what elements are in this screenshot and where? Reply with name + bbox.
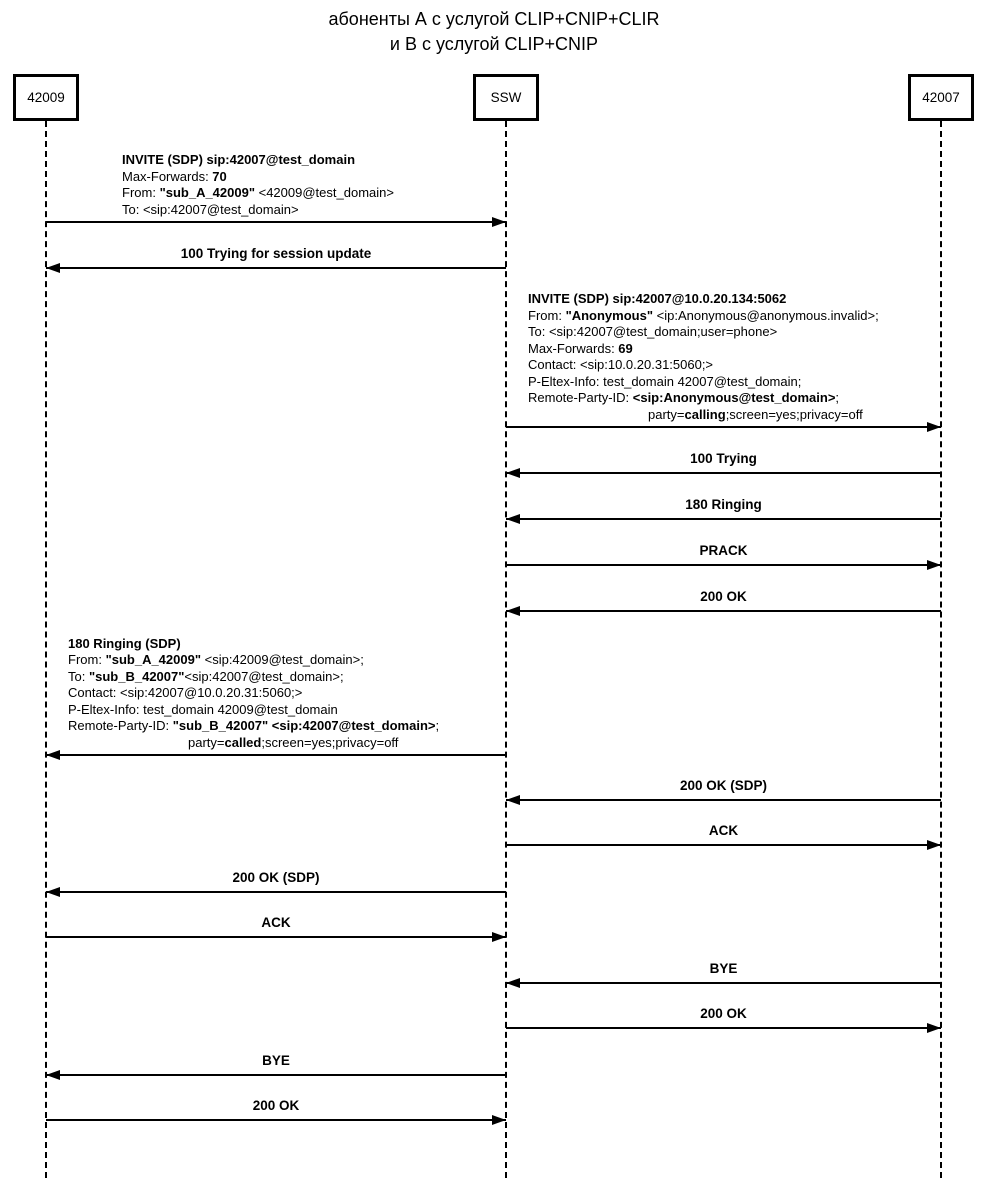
message-arrow-line	[46, 267, 506, 269]
message-header-text: <ip:Anonymous@anonymous.invalid>;	[653, 308, 879, 323]
message-arrow-line	[46, 221, 506, 223]
message-label: ACK	[46, 914, 506, 932]
diagram-title-line1: абоненты А с услугой CLIP+CNIP+CLIR	[0, 7, 988, 32]
message-header-text: To: <sip:42007@test_domain>	[122, 202, 299, 217]
arrow-head-right-icon	[927, 840, 941, 850]
message-header-text: From:	[528, 308, 566, 323]
message-header-text: Remote-Party-ID:	[68, 718, 173, 733]
arrow-head-right-icon	[492, 1115, 506, 1125]
message-header-block: 180 Ringing (SDP)From: "sub_A_42009" <si…	[68, 636, 439, 752]
message-header-text: "sub_A_42009"	[106, 652, 201, 667]
message-label: BYE	[46, 1052, 506, 1070]
arrow-head-right-icon	[927, 560, 941, 570]
message-header-line: INVITE (SDP) sip:42007@test_domain	[122, 152, 394, 169]
message-header-text: ;	[436, 718, 440, 733]
arrow-head-left-icon	[46, 887, 60, 897]
message-header-line: To: <sip:42007@test_domain>	[122, 202, 394, 219]
message-arrow-line	[506, 610, 941, 612]
message-arrow-line	[506, 472, 941, 474]
message-arrow-line	[46, 1119, 506, 1121]
message-header-text: 69	[618, 341, 632, 356]
message-header-text: From:	[122, 185, 160, 200]
message-header-text: "sub_B_42007"	[89, 669, 184, 684]
message-header-text: <42009@test_domain>	[255, 185, 394, 200]
actor-box-42007: 42007	[908, 74, 974, 121]
message-header-line: Contact: <sip:42007@10.0.20.31:5060;>	[68, 685, 439, 702]
message-header-text: <sip:42007@test_domain>;	[184, 669, 343, 684]
message-header-text: party=	[648, 407, 685, 422]
message-header-text: Contact: <sip:42007@10.0.20.31:5060;>	[68, 685, 302, 700]
message-header-line: party=called;screen=yes;privacy=off	[68, 735, 439, 752]
message-header-text: called	[225, 735, 262, 750]
diagram-title-line2: и В с услугой CLIP+CNIP	[0, 32, 988, 57]
message-header-line: party=calling;screen=yes;privacy=off	[528, 407, 879, 424]
message-header-text: "sub_A_42009"	[160, 185, 255, 200]
message-label: BYE	[506, 960, 941, 978]
arrow-head-right-icon	[492, 217, 506, 227]
message-header-line: From: "sub_A_42009" <42009@test_domain>	[122, 185, 394, 202]
message-label: 200 OK (SDP)	[46, 869, 506, 887]
message-header-line: From: "sub_A_42009" <sip:42009@test_doma…	[68, 652, 439, 669]
arrow-head-right-icon	[927, 1023, 941, 1033]
actor-label: 42007	[922, 90, 960, 105]
arrow-head-left-icon	[46, 263, 60, 273]
message-header-text: To:	[68, 669, 89, 684]
message-arrow-line	[506, 799, 941, 801]
message-header-line: From: "Anonymous" <ip:Anonymous@anonymou…	[528, 308, 879, 325]
message-header-text: Remote-Party-ID:	[528, 390, 633, 405]
message-header-text: INVITE (SDP) sip:42007@test_domain	[122, 152, 355, 167]
message-header-text: ;	[835, 390, 839, 405]
message-header-text: ;screen=yes;privacy=off	[726, 407, 863, 422]
message-header-text: "Anonymous"	[566, 308, 653, 323]
message-header-block: INVITE (SDP) sip:42007@test_domainMax-Fo…	[122, 152, 394, 218]
arrow-head-left-icon	[506, 978, 520, 988]
actor-box-SSW: SSW	[473, 74, 539, 121]
message-arrow-line	[46, 936, 506, 938]
message-header-line: Remote-Party-ID: "sub_B_42007" <sip:4200…	[68, 718, 439, 735]
message-header-text: <sip:42009@test_domain>;	[201, 652, 364, 667]
arrow-head-left-icon	[46, 1070, 60, 1080]
message-header-text: Max-Forwards:	[528, 341, 618, 356]
message-header-text: 70	[212, 169, 226, 184]
message-arrow-line	[506, 564, 941, 566]
message-header-line: To: "sub_B_42007"<sip:42007@test_domain>…	[68, 669, 439, 686]
message-label: 200 OK	[46, 1097, 506, 1115]
message-header-text: 180 Ringing (SDP)	[68, 636, 181, 651]
arrow-head-right-icon	[492, 932, 506, 942]
message-header-line: To: <sip:42007@test_domain;user=phone>	[528, 324, 879, 341]
message-header-line: 180 Ringing (SDP)	[68, 636, 439, 653]
message-header-text: P-Eltex-Info: test_domain 42007@test_dom…	[528, 374, 801, 389]
message-header-text: INVITE (SDP) sip:42007@10.0.20.134:5062	[528, 291, 786, 306]
arrow-head-right-icon	[927, 422, 941, 432]
arrow-head-left-icon	[506, 795, 520, 805]
message-header-block: INVITE (SDP) sip:42007@10.0.20.134:5062F…	[528, 291, 879, 423]
message-arrow-line	[46, 1074, 506, 1076]
arrow-head-left-icon	[506, 468, 520, 478]
message-header-text: Contact: <sip:10.0.20.31:5060;>	[528, 357, 713, 372]
diagram-title: абоненты А с услугой CLIP+CNIP+CLIR и В …	[0, 7, 988, 57]
message-label: 200 OK (SDP)	[506, 777, 941, 795]
message-arrow-line	[46, 754, 506, 756]
message-arrow-line	[506, 426, 941, 428]
actor-box-42009: 42009	[13, 74, 79, 121]
arrow-head-left-icon	[506, 606, 520, 616]
message-header-text: From:	[68, 652, 106, 667]
message-header-line: P-Eltex-Info: test_domain 42007@test_dom…	[528, 374, 879, 391]
message-header-text: <sip:Anonymous@test_domain>	[633, 390, 836, 405]
message-header-line: P-Eltex-Info: test_domain 42009@test_dom…	[68, 702, 439, 719]
message-label: 100 Trying	[506, 450, 941, 468]
message-header-line: Remote-Party-ID: <sip:Anonymous@test_dom…	[528, 390, 879, 407]
message-header-text: "sub_B_42007" <sip:42007@test_domain>	[173, 718, 436, 733]
actor-label: SSW	[491, 90, 522, 105]
message-arrow-line	[46, 891, 506, 893]
message-header-text: Max-Forwards:	[122, 169, 212, 184]
message-label: 100 Trying for session update	[46, 245, 506, 263]
message-header-line: Contact: <sip:10.0.20.31:5060;>	[528, 357, 879, 374]
actor-label: 42009	[27, 90, 65, 105]
message-header-text: P-Eltex-Info: test_domain 42009@test_dom…	[68, 702, 338, 717]
message-header-line: INVITE (SDP) sip:42007@10.0.20.134:5062	[528, 291, 879, 308]
message-arrow-line	[506, 518, 941, 520]
arrow-head-left-icon	[506, 514, 520, 524]
message-header-text: To: <sip:42007@test_domain;user=phone>	[528, 324, 777, 339]
message-label: 200 OK	[506, 588, 941, 606]
message-label: 200 OK	[506, 1005, 941, 1023]
message-header-line: Max-Forwards: 69	[528, 341, 879, 358]
message-label: PRACK	[506, 542, 941, 560]
message-header-text: ;screen=yes;privacy=off	[261, 735, 398, 750]
message-header-text: party=	[188, 735, 225, 750]
message-arrow-line	[506, 982, 941, 984]
message-label: ACK	[506, 822, 941, 840]
sequence-diagram: абоненты А с услугой CLIP+CNIP+CLIR и В …	[0, 0, 988, 1178]
message-header-text: calling	[685, 407, 726, 422]
message-header-line: Max-Forwards: 70	[122, 169, 394, 186]
message-arrow-line	[506, 844, 941, 846]
message-arrow-line	[506, 1027, 941, 1029]
lifeline-42009	[45, 121, 47, 1178]
arrow-head-left-icon	[46, 750, 60, 760]
message-label: 180 Ringing	[506, 496, 941, 514]
